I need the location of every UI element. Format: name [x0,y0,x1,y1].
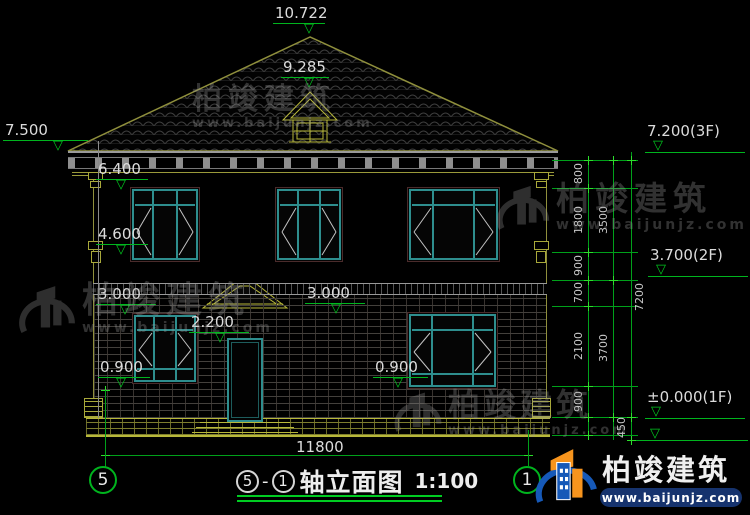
brand-logo: 柏竣建筑 www.baijunjz.com [532,444,750,514]
watermark: 柏竣建筑 www.baijunjz.com [494,182,747,240]
elevation-drawing-canvas: 10.722▽ 9.285▽ 7.500▽ 6.400▽ 4.600▽ 3.00… [0,0,750,515]
level-marker-7500: 7.500▽ [3,140,88,141]
level-marker-0900-right: 0.900▽ [373,377,428,378]
watermark: 柏竣建筑 www.baijunjz.com [392,389,629,441]
watermark-logo-icon [392,389,444,441]
level-marker-ground: ▽ [632,440,748,441]
title-name: 轴立面图 [300,463,404,499]
dim-11800: 11800 [296,438,344,456]
title-scale: 1:100 [415,469,479,493]
level-marker-0900-left: 0.900▽ [98,377,150,378]
dim-700: 700 [572,280,585,306]
title-underline-2 [237,500,442,502]
level-marker-4600: 4.600▽ [96,244,148,245]
entry-door [227,338,263,422]
watermark: 柏竣建筑 www.baijunjz.com [16,282,273,344]
watermark-logo-icon [16,282,78,344]
level-marker-peak: 10.722▽ [273,23,325,24]
title-axis-start: 5 [236,470,259,493]
brand-logo-icon [532,444,598,512]
brand-url: www.baijunjz.com [600,488,742,507]
dim-900a: 900 [572,252,585,280]
eave-cornice [68,151,558,175]
watermark-logo-icon [494,182,552,240]
level-marker-3f: 7.200(3F)▽ [645,152,745,153]
window-2f-center [275,187,343,262]
dim-7200: 7200 [633,262,646,332]
title-axis-end: 1 [272,470,295,493]
axis-bubble-5: 5 [89,466,117,494]
level-marker-6400: 6.400▽ [96,179,148,180]
view-title: 5 - 1 轴立面图 1:100 [236,463,478,499]
title-underline [237,495,442,497]
level-marker-3000-mid: 3.000▽ [305,303,365,304]
level-marker-1f: ±0.000(1F)▽ [645,418,745,419]
window-2f-right [407,187,500,262]
title-dash: - [262,471,269,492]
watermark: 柏竣建筑 www.baijunjz.com [192,84,373,131]
level-marker-vent: 9.285▽ [281,77,329,78]
brand-name: 柏竣建筑 [602,447,730,489]
dim-2100: 2100 [572,306,585,386]
level-marker-2f: 3.700(2F)▽ [648,276,748,277]
